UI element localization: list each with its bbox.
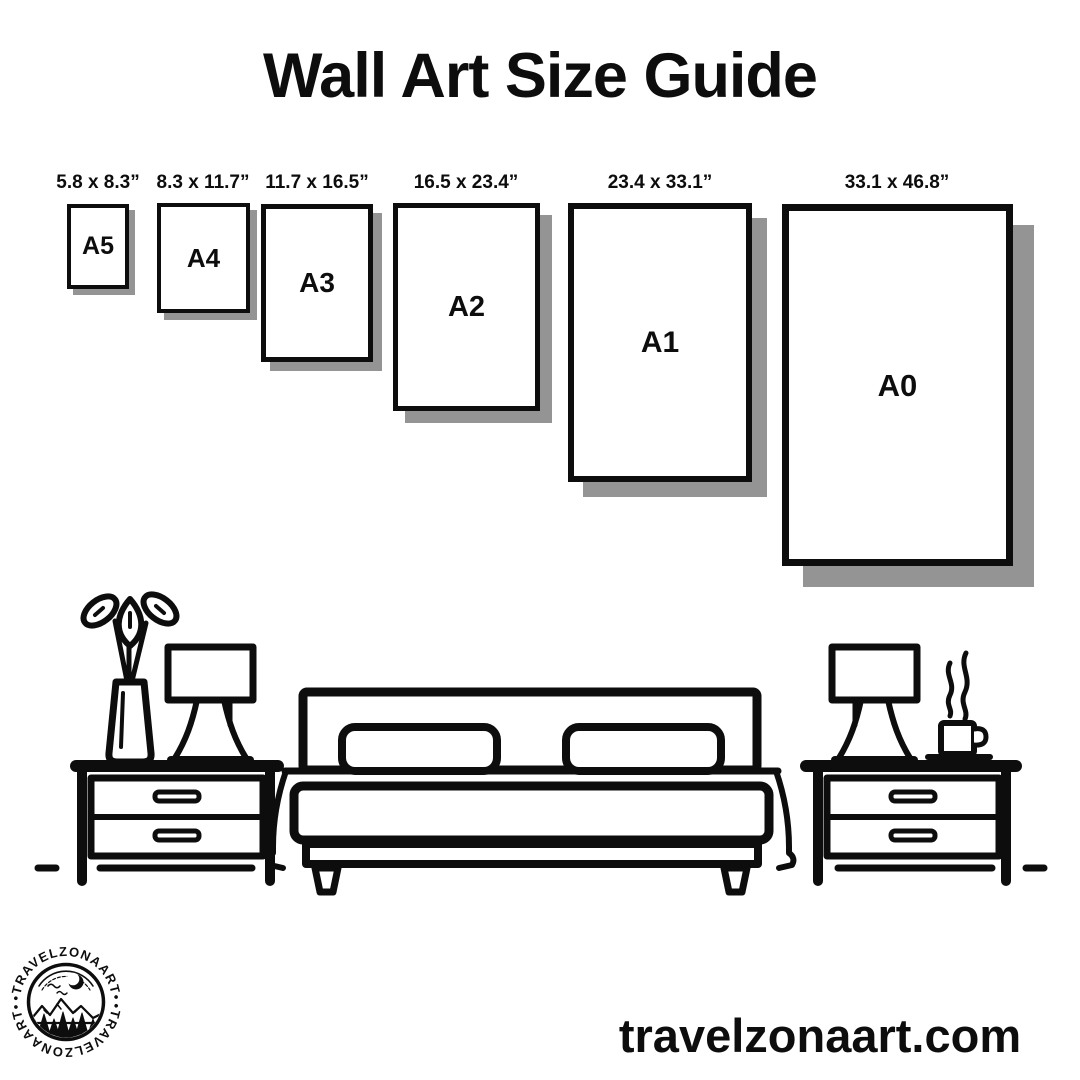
website-url: travelzonaart.com (560, 1008, 1080, 1063)
size-code-a5: A5 (82, 234, 114, 259)
coffee-cup-icon (928, 653, 990, 757)
logo-arc-text-top: •TRAVELZONAART• (8, 944, 124, 1001)
size-code-a2: A2 (448, 293, 485, 322)
size-code-a1: A1 (641, 328, 679, 358)
size-dimensions-a0: 33.1 x 46.8” (817, 172, 977, 194)
size-dimensions-a1: 23.4 x 33.1” (580, 172, 740, 194)
size-code-a3: A3 (299, 269, 335, 297)
size-frame-a1: A1 (568, 203, 752, 482)
bird-icon (48, 984, 60, 988)
size-code-a0: A0 (878, 370, 918, 401)
nightstand-icon (76, 766, 278, 881)
size-dimensions-a2: 16.5 x 23.4” (386, 172, 546, 194)
bird-icon (57, 992, 67, 995)
size-frame-a3: A3 (261, 204, 373, 362)
size-dimensions-a3: 11.7 x 16.5” (237, 172, 397, 194)
bedroom-illustration (0, 575, 1080, 915)
brand-logo: •TRAVELZONAART• •TRAVELZONAART• (4, 924, 128, 1076)
page-title: Wall Art Size Guide (0, 40, 1080, 112)
double-bed-icon (269, 692, 794, 892)
size-frame-a4: A4 (157, 203, 250, 313)
table-lamp-icon (168, 647, 253, 760)
size-frame-a5: A5 (67, 204, 129, 289)
size-frame-a0: A0 (782, 204, 1013, 566)
size-frame-a2: A2 (393, 203, 540, 411)
svg-text:•TRAVELZONAART•: •TRAVELZONAART• (8, 944, 124, 1001)
table-lamp-icon (832, 647, 917, 760)
nightstand-icon (806, 766, 1016, 881)
size-code-a4: A4 (187, 245, 220, 271)
